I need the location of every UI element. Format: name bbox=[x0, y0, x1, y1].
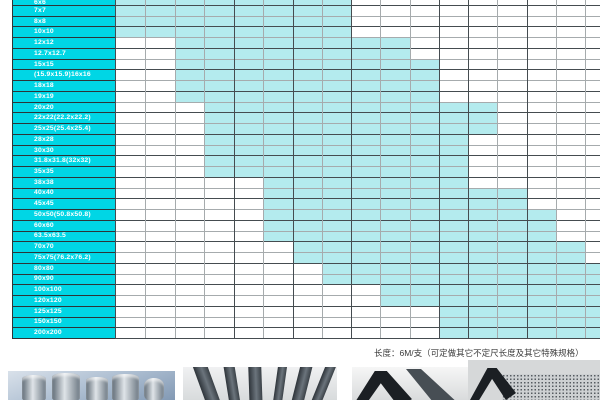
catalog-page: 6x67x78x810x1012x1212.7x12.715x15(15.9x1… bbox=[0, 0, 600, 400]
size-row-label: 150x150 bbox=[12, 317, 115, 328]
size-row-label: 31.8x31.8(32x32) bbox=[12, 155, 115, 166]
availability-fill bbox=[175, 69, 439, 80]
availability-fill bbox=[293, 241, 585, 252]
availability-fill bbox=[175, 37, 410, 48]
halftone-dots bbox=[502, 374, 600, 400]
size-row-label: 28x28 bbox=[12, 134, 115, 145]
round-bar-shape bbox=[112, 374, 139, 400]
size-row-label: 15x15 bbox=[12, 59, 115, 70]
flat-bar-shape bbox=[248, 367, 263, 400]
size-row-label: 75x75(76.2x76.2) bbox=[12, 252, 115, 263]
availability-fill bbox=[439, 327, 600, 338]
availability-fill bbox=[380, 284, 600, 295]
availability-fill bbox=[204, 155, 468, 166]
availability-fill bbox=[204, 134, 468, 145]
availability-fill bbox=[263, 220, 556, 231]
round-bar-shape bbox=[22, 375, 46, 400]
availability-fill bbox=[439, 317, 600, 328]
angle-profile-shape bbox=[352, 371, 412, 400]
size-row-label: 70x70 bbox=[12, 241, 115, 252]
mesh-texture-photo bbox=[468, 360, 600, 400]
flat-bar-shape bbox=[223, 367, 242, 400]
availability-fill bbox=[204, 123, 497, 134]
size-row-label: 63.5x63.5 bbox=[12, 231, 115, 242]
availability-fill bbox=[204, 166, 468, 177]
size-row-label: 50x50(50.8x50.8) bbox=[12, 209, 115, 220]
size-row-label: 80x80 bbox=[12, 263, 115, 274]
size-row-label: 12.7x12.7 bbox=[12, 48, 115, 59]
flat-bar-shape bbox=[193, 367, 224, 400]
availability-fill bbox=[263, 198, 527, 209]
stainless-round-bars-photo bbox=[8, 371, 175, 400]
availability-fill bbox=[204, 112, 497, 123]
size-row-label: 7x7 bbox=[12, 5, 115, 16]
size-row-label: 12x12 bbox=[12, 37, 115, 48]
size-row-label: 25x25(25.4x25.4) bbox=[12, 123, 115, 134]
round-bar-shape bbox=[144, 378, 164, 400]
availability-fill bbox=[439, 306, 600, 317]
size-row-label: 90x90 bbox=[12, 274, 115, 285]
availability-fill bbox=[175, 59, 439, 70]
availability-fill bbox=[115, 5, 351, 16]
availability-fill bbox=[204, 145, 468, 156]
angle-profile-shadow bbox=[406, 369, 456, 400]
round-bar-shape bbox=[52, 373, 80, 400]
availability-fill bbox=[263, 231, 556, 242]
availability-fill bbox=[380, 295, 600, 306]
size-row-label: 200x200 bbox=[12, 327, 115, 338]
size-row-label: 30x30 bbox=[12, 145, 115, 156]
availability-fill bbox=[175, 80, 439, 91]
grid-line bbox=[115, 0, 116, 338]
availability-fill bbox=[322, 274, 600, 285]
size-row-label: 100x100 bbox=[12, 284, 115, 295]
grid-line bbox=[12, 338, 115, 339]
flat-steel-bars-photo bbox=[183, 367, 337, 400]
round-bar-shape bbox=[86, 377, 108, 400]
flat-bar-shape bbox=[308, 367, 337, 400]
size-row-label: 120x120 bbox=[12, 295, 115, 306]
availability-fill bbox=[115, 26, 351, 37]
availability-fill bbox=[115, 16, 351, 27]
flat-bar-shape bbox=[271, 367, 287, 400]
grid-line bbox=[145, 0, 146, 338]
availability-fill bbox=[204, 102, 497, 113]
size-row-label: 38x38 bbox=[12, 177, 115, 188]
availability-fill bbox=[263, 177, 468, 188]
size-row-label: 19x19 bbox=[12, 91, 115, 102]
size-row-label: (15.9x15.9)16x16 bbox=[12, 69, 115, 80]
size-row-label: 35x35 bbox=[12, 166, 115, 177]
availability-fill bbox=[322, 263, 600, 274]
size-row-label: 22x22(22.2x22.2) bbox=[12, 112, 115, 123]
availability-fill bbox=[263, 209, 556, 220]
availability-fill bbox=[175, 48, 410, 59]
size-row-label: 125x125 bbox=[12, 306, 115, 317]
size-row-label: 45x45 bbox=[12, 198, 115, 209]
grid-line bbox=[115, 338, 600, 339]
size-row-label: 8x8 bbox=[12, 16, 115, 27]
availability-fill bbox=[263, 188, 527, 199]
availability-fill bbox=[293, 252, 585, 263]
size-row-label: 40x40 bbox=[12, 188, 115, 199]
length-note: 长度：6M/支（可定做其它不定尺长度及其它特殊规格） bbox=[374, 347, 584, 359]
angle-steel-photo bbox=[352, 367, 468, 400]
size-row-label: 20x20 bbox=[12, 102, 115, 113]
availability-fill bbox=[175, 91, 439, 102]
flat-bar-shape bbox=[289, 367, 313, 400]
size-row-label: 10x10 bbox=[12, 26, 115, 37]
size-row-label: 60x60 bbox=[12, 220, 115, 231]
size-row-label: 18x18 bbox=[12, 80, 115, 91]
